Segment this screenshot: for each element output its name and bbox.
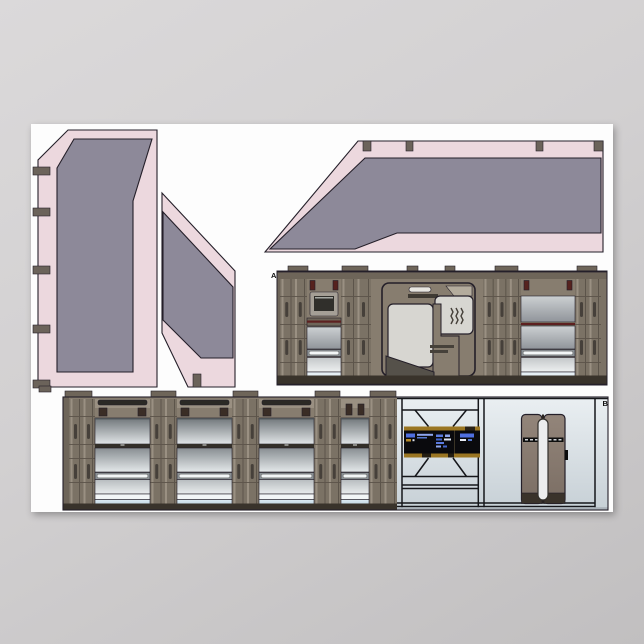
cutout-piece-ceiling-left [33,130,157,392]
cutout-piece-ceiling-right [265,141,603,252]
corridor-door [522,415,569,504]
corridor-wall-strip-b [63,391,608,510]
piece-b-label: B [603,399,609,408]
poster-artwork: A B [31,124,613,512]
piece-a-label: A [271,271,277,280]
papercraft-poster: A B [31,124,613,512]
door-handle [565,450,569,460]
corridor-wall-strip-a [277,266,607,385]
lcars-display [404,427,480,458]
product-photo-background: A B [0,0,644,644]
cutout-piece-ceiling-middle [162,193,235,387]
piece-middle-glue-tab [193,374,201,387]
